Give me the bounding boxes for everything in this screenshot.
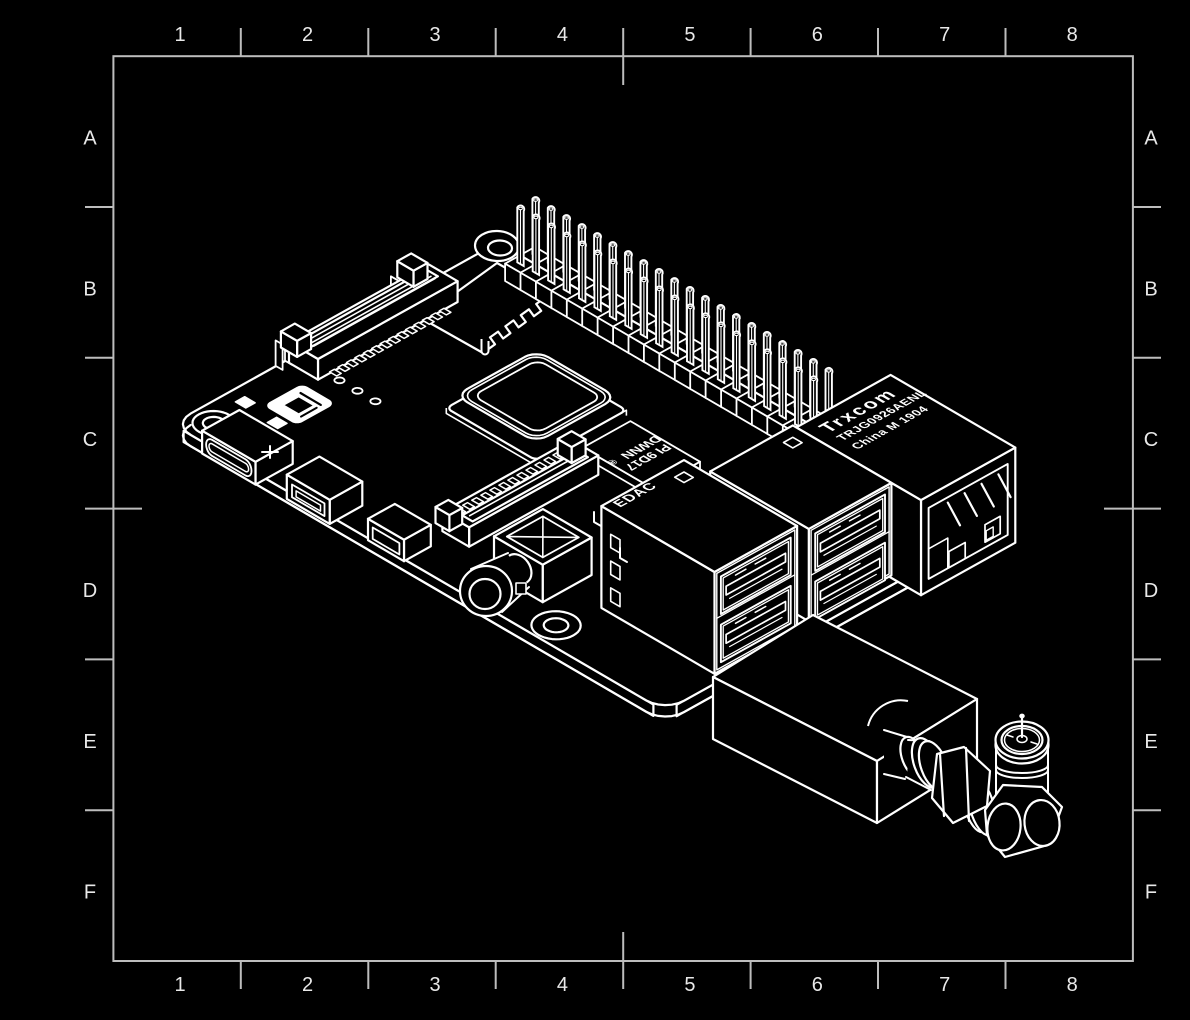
svg-text:8: 8 — [1067, 974, 1078, 996]
svg-text:4: 4 — [557, 24, 568, 46]
svg-text:3: 3 — [429, 24, 440, 46]
svg-text:F: F — [1145, 882, 1157, 904]
svg-text:3: 3 — [429, 974, 440, 996]
svg-text:A: A — [1144, 128, 1158, 150]
svg-text:C: C — [1144, 429, 1158, 451]
svg-text:E: E — [83, 731, 96, 753]
svg-text:B: B — [1144, 278, 1157, 300]
svg-text:E: E — [1144, 731, 1157, 753]
svg-text:1: 1 — [175, 24, 186, 46]
svg-text:D: D — [1144, 580, 1158, 602]
svg-text:5: 5 — [684, 24, 695, 46]
svg-text:7: 7 — [939, 974, 950, 996]
svg-text:D: D — [83, 580, 97, 602]
svg-text:B: B — [83, 278, 96, 300]
svg-text:6: 6 — [812, 974, 823, 996]
svg-text:5: 5 — [684, 974, 695, 996]
svg-text:F: F — [84, 882, 96, 904]
svg-text:8: 8 — [1067, 24, 1078, 46]
svg-text:A: A — [83, 128, 97, 150]
svg-text:6: 6 — [812, 24, 823, 46]
svg-text:4: 4 — [557, 974, 568, 996]
svg-text:2: 2 — [302, 24, 313, 46]
svg-text:C: C — [83, 429, 97, 451]
svg-text:2: 2 — [302, 974, 313, 996]
svg-text:7: 7 — [939, 24, 950, 46]
svg-text:1: 1 — [175, 974, 186, 996]
